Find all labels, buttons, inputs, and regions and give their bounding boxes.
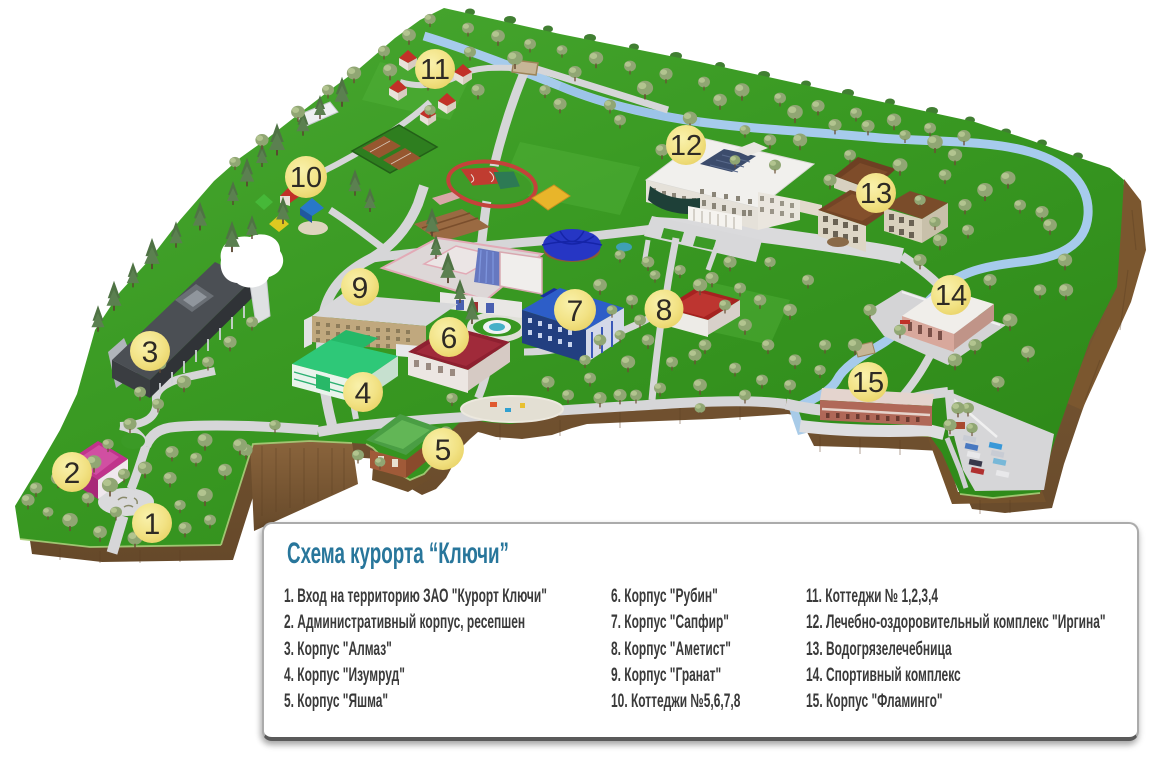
svg-text:13: 13 xyxy=(860,178,892,210)
svg-text:6: 6 xyxy=(441,322,458,355)
svg-text:11: 11 xyxy=(420,54,450,86)
svg-text:8: 8 xyxy=(656,294,673,327)
svg-text:5: 5 xyxy=(435,434,452,467)
svg-text:4: 4 xyxy=(355,377,372,410)
svg-text:10: 10 xyxy=(290,162,322,194)
svg-text:7: 7 xyxy=(567,295,584,328)
svg-text:2: 2 xyxy=(64,457,81,490)
svg-text:14: 14 xyxy=(935,280,967,312)
svg-text:1: 1 xyxy=(144,508,161,541)
svg-text:12: 12 xyxy=(670,130,702,162)
svg-text:9: 9 xyxy=(352,272,369,305)
svg-text:15: 15 xyxy=(852,367,884,399)
svg-text:3: 3 xyxy=(142,336,159,369)
